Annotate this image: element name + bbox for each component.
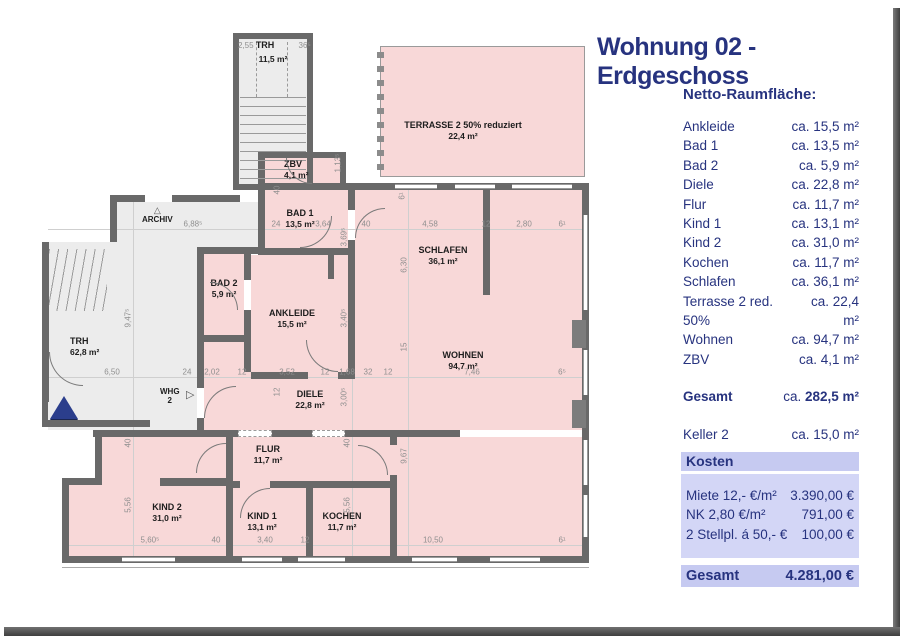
keller-label: Keller 2 <box>683 425 729 444</box>
wall-29 <box>258 248 355 255</box>
room-label: ANKLEIDE15,5 m² <box>269 308 315 330</box>
room-name: TRH <box>70 336 99 347</box>
room-area: 22,8 m² <box>295 400 324 411</box>
dimension-label: 3,40 <box>257 536 273 545</box>
room-area: 31,0 m² <box>152 513 182 524</box>
netto-room-label: Ankleide <box>683 117 735 136</box>
window-right-0 <box>583 215 588 310</box>
dimension-label: 3,40⁵ <box>340 309 349 328</box>
kosten-table: Miete 12,- €/m²3.390,00 €NK 2,80 €/m²791… <box>681 474 859 558</box>
netto-room-list: Ankleideca. 15,5 m²Bad 1ca. 13,5 m²Bad 2… <box>683 117 859 444</box>
dimension-label: 5,56 <box>124 497 133 513</box>
wall-28 <box>244 335 251 372</box>
netto-room-label: ZBV <box>683 350 709 369</box>
window-bottom-3 <box>412 557 457 562</box>
wall-39 <box>270 481 390 488</box>
wall-opening-1 <box>312 430 345 437</box>
netto-subtitle: Netto-Raumfläche: <box>683 86 816 103</box>
wall-36 <box>272 430 312 437</box>
dimension-label: 32 <box>364 368 373 377</box>
netto-room-label: Kind 2 <box>683 233 721 252</box>
dimension-label: 9,47⁵ <box>124 309 133 328</box>
window-top-0 <box>395 184 437 189</box>
stair-dim-left: 2,55 <box>238 41 254 50</box>
dimension-label: 40 <box>212 536 221 545</box>
dimension-label: 4,58 <box>422 220 438 229</box>
netto-room-label: Terrasse 2 red. 50% <box>683 292 796 331</box>
netto-room-row: Terrasse 2 red. 50%ca. 22,4 m² <box>683 292 859 331</box>
dimension-label: 6⁵ <box>558 368 566 377</box>
dimension-label: 12 <box>301 536 310 545</box>
dimension-label: 12 <box>482 220 491 229</box>
window-pillar-1 <box>572 400 586 428</box>
dimension-label: 3,52 <box>279 368 295 377</box>
netto-room-row: Flurca. 11,7 m² <box>683 195 859 214</box>
dimension-label: 6,30 <box>400 257 409 273</box>
netto-room-value: ca. 36,1 m² <box>791 272 859 291</box>
dimension-label: 5,56 <box>343 497 352 513</box>
window-right-3 <box>583 495 588 537</box>
wall-20 <box>310 184 348 190</box>
dimension-label: 6¹ <box>558 220 565 229</box>
wall-32 <box>348 240 355 372</box>
dimension-label: 5,60⁵ <box>141 536 160 545</box>
room-name: WOHNEN <box>443 350 484 361</box>
window-top-1 <box>455 184 495 189</box>
dimension-label: 2,02 <box>204 368 220 377</box>
stair-dashed-guides <box>256 42 288 97</box>
wall-35 <box>93 430 238 437</box>
dimension-label: 12 <box>273 388 282 397</box>
netto-room-row: Dieleca. 22,8 m² <box>683 175 859 194</box>
archiv-marker: △ ARCHIV <box>142 206 173 224</box>
room-name: KIND 2 <box>152 502 182 513</box>
netto-room-label: Kochen <box>683 253 729 272</box>
keller-value: ca. 15,0 m² <box>791 425 859 444</box>
room-name: FLUR <box>254 444 283 455</box>
entrance-arrow-icon <box>50 396 78 419</box>
stairwell-area: 11,5 m² <box>259 54 288 65</box>
kosten-row-label: NK 2,80 €/m² <box>686 505 766 524</box>
netto-room-row: Schlafenca. 36,1 m² <box>683 272 859 291</box>
kosten-row: Miete 12,- €/m²3.390,00 € <box>686 486 854 505</box>
wall-15 <box>42 420 150 427</box>
kosten-header: Kosten <box>681 452 859 471</box>
dimension-label: 9,67 <box>400 448 409 464</box>
kosten-row-value: 3.390,00 € <box>790 486 854 505</box>
dimension-label: 12 <box>238 368 247 377</box>
right-triangle-icon: ▷ <box>186 391 194 400</box>
dim-line-h2 <box>62 545 588 546</box>
wall-45 <box>483 190 490 295</box>
wall-41 <box>160 478 226 486</box>
kosten-row-value: 100,00 € <box>801 525 854 544</box>
window-bottom-0 <box>122 557 175 562</box>
room-name: SCHLAFEN <box>419 245 468 256</box>
room-name: TERRASSE 2 50% reduziert <box>404 120 522 131</box>
floor-bottom-band <box>100 437 582 556</box>
up-triangle-icon: △ <box>154 205 161 215</box>
netto-room-label: Diele <box>683 175 714 194</box>
netto-room-row: Bad 1ca. 13,5 m² <box>683 136 859 155</box>
wall-42 <box>306 481 313 563</box>
netto-room-value: ca. 5,9 m² <box>799 156 859 175</box>
wall-30 <box>328 255 334 279</box>
kosten-row: NK 2,80 €/m²791,00 € <box>686 505 854 524</box>
archiv-label: ARCHIV <box>142 215 173 224</box>
kosten-row: 2 Stellpl. á 50,- €100,00 € <box>686 525 854 544</box>
dimension-label: 15 <box>400 343 409 352</box>
netto-room-row: Kind 1ca. 13,1 m² <box>683 214 859 233</box>
netto-room-value: ca. 11,7 m² <box>792 253 859 272</box>
wall-13 <box>110 195 117 242</box>
wall-23 <box>197 254 204 388</box>
room-label: SCHLAFEN36,1 m² <box>419 245 468 267</box>
window-bottom-1 <box>242 557 282 562</box>
floor-schlafen-wohnen <box>355 190 582 430</box>
room-label: DIELE22,8 m² <box>295 389 324 411</box>
keller-row: Keller 2 ca. 15,0 m² <box>683 425 859 444</box>
wall-31 <box>348 183 355 210</box>
netto-room-value: ca. 4,1 m² <box>799 350 859 369</box>
netto-room-label: Wohnen <box>683 330 733 349</box>
dimension-label: 24 <box>272 220 281 229</box>
dimension-label: 1,68 <box>339 368 355 377</box>
kosten-row-label: 2 Stellpl. á 50,- € <box>686 525 787 544</box>
wall-9 <box>95 430 102 485</box>
dimension-label: 2,80 <box>516 220 532 229</box>
dimension-label: 40 <box>343 439 352 448</box>
room-label: FLUR11,7 m² <box>254 444 283 466</box>
netto-room-label: Kind 1 <box>683 214 721 233</box>
wall-opening-0 <box>238 430 272 437</box>
wall-7 <box>62 478 69 563</box>
netto-room-value: ca. 11,7 m² <box>792 195 859 214</box>
netto-room-value: ca. 15,5 m² <box>791 117 859 136</box>
room-label: KOCHEN11,7 m² <box>322 511 361 533</box>
netto-room-label: Flur <box>683 195 706 214</box>
netto-room-row: Ankleideca. 15,5 m² <box>683 117 859 136</box>
dimension-label: 40 <box>124 439 133 448</box>
dimension-label: 7,46 <box>464 368 480 377</box>
dimension-label: 24 <box>183 368 192 377</box>
netto-room-value: ca. 94,7 m² <box>791 330 859 349</box>
wall-22 <box>197 247 265 254</box>
window-top-2 <box>512 184 572 189</box>
netto-room-row: Wohnenca. 94,7 m² <box>683 330 859 349</box>
netto-room-row: Kochenca. 11,7 m² <box>683 253 859 272</box>
dimension-label: 40 <box>273 186 282 195</box>
netto-room-label: Bad 1 <box>683 136 718 155</box>
wall-12 <box>172 195 240 202</box>
window-pillar-0 <box>572 320 586 348</box>
netto-room-value: ca. 13,1 m² <box>791 214 859 233</box>
room-area: 22,4 m² <box>404 131 522 142</box>
whg-number: 2 <box>168 396 172 405</box>
dimension-label: 10,50 <box>423 536 443 545</box>
winder-stair-treads <box>49 249 107 311</box>
wall-0 <box>233 33 313 39</box>
page-shadow-right <box>893 8 900 636</box>
dimension-label: 1,13⁵ <box>334 154 343 173</box>
room-name: ANKLEIDE <box>269 308 315 319</box>
wall-40 <box>226 437 233 563</box>
dimension-label: 6¹ <box>398 192 407 199</box>
kosten-row-label: Miete 12,- €/m² <box>686 486 777 505</box>
window-right-2 <box>583 440 588 485</box>
page-shadow-bottom <box>4 627 900 636</box>
dimension-label: 6,88⁵ <box>184 220 203 229</box>
dim-line-h1 <box>42 377 588 378</box>
netto-room-value: ca. 22,4 m² <box>796 292 859 331</box>
wall-25 <box>244 254 251 280</box>
wall-1 <box>233 33 239 190</box>
stair-dim-right: 36⁵ <box>299 41 311 50</box>
kosten-total-row: Gesamt 4.281,00 € <box>681 565 859 587</box>
wall-44 <box>390 475 397 563</box>
floor-plan: 2,55 TRH 36⁵ 11,5 m² △ ARCHIV WHG ▷ 2 TE… <box>0 0 600 600</box>
netto-room-value: ca. 31,0 m² <box>791 233 859 252</box>
terrace-hatch <box>377 52 384 174</box>
stairwell-header: 2,55 TRH 36⁵ <box>238 40 311 50</box>
dimension-label: 6,50 <box>104 368 120 377</box>
netto-room-row: Bad 2ca. 5,9 m² <box>683 156 859 175</box>
window-sill-bottom <box>62 567 589 568</box>
kosten-rows: Miete 12,- €/m²3.390,00 €NK 2,80 €/m²791… <box>686 486 854 544</box>
room-area: 36,1 m² <box>419 256 468 267</box>
page-title: Wohnung 02 - Erdgeschoss <box>597 33 879 91</box>
room-area: 11,7 m² <box>322 522 361 533</box>
terrace-area <box>380 46 585 177</box>
netto-room-row: ZBVca. 4,1 m² <box>683 350 859 369</box>
netto-total-value: 282,5 m² <box>805 389 859 404</box>
netto-room-value: ca. 22,8 m² <box>791 175 859 194</box>
dimension-label: 3,00⁵ <box>340 388 349 407</box>
netto-total-ca: ca. <box>783 389 805 404</box>
wall-21 <box>258 190 265 254</box>
wall-10 <box>42 242 49 402</box>
dimension-label: 6¹ <box>558 536 565 545</box>
room-name: DIELE <box>295 389 324 400</box>
window-bottom-4 <box>490 557 540 562</box>
dim-line-v0 <box>133 195 134 556</box>
netto-rows: Ankleideca. 15,5 m²Bad 1ca. 13,5 m²Bad 2… <box>683 117 859 369</box>
room-area: 13,1 m² <box>247 522 277 533</box>
netto-total-label: Gesamt <box>683 387 733 406</box>
kosten-row-value: 791,00 € <box>801 505 854 524</box>
room-label: KIND 231,0 m² <box>152 502 182 524</box>
kosten-total-value: 4.281,00 € <box>785 565 854 587</box>
room-label: TERRASSE 2 50% reduziert22,4 m² <box>404 120 522 142</box>
netto-room-label: Schlafen <box>683 272 736 291</box>
wall-37 <box>345 430 460 437</box>
wall-43 <box>390 430 397 445</box>
brochure-page: 2,55 TRH 36⁵ 11,5 m² △ ARCHIV WHG ▷ 2 TE… <box>0 0 900 636</box>
window-right-1 <box>583 350 588 395</box>
room-area: 15,5 m² <box>269 319 315 330</box>
dim-line-v2 <box>408 190 409 556</box>
room-area: 11,7 m² <box>254 455 283 466</box>
netto-room-label: Bad 2 <box>683 156 718 175</box>
whg-label: WHG <box>160 387 180 396</box>
window-bottom-2 <box>298 557 345 562</box>
kosten-total-label: Gesamt <box>686 565 739 587</box>
netto-total-row: Gesamt ca. 282,5 m² <box>683 387 859 406</box>
netto-room-value: ca. 13,5 m² <box>791 136 859 155</box>
stairwell-name: TRH <box>256 40 275 50</box>
whg2-marker: WHG ▷ 2 <box>160 387 180 405</box>
dimension-label: 3,69⁵ <box>340 228 349 247</box>
netto-room-row: Kind 2ca. 31,0 m² <box>683 233 859 252</box>
dimension-label: 12 <box>384 368 393 377</box>
